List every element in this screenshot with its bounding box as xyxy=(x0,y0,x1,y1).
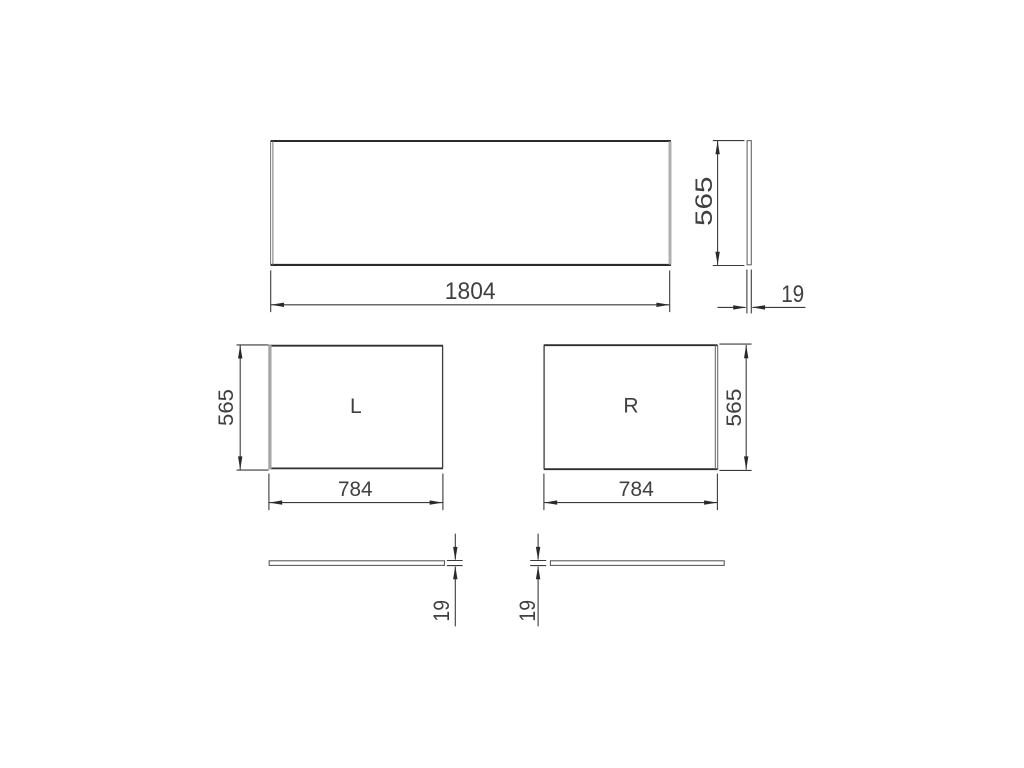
svg-text:784: 784 xyxy=(619,478,655,501)
svg-text:565: 565 xyxy=(691,177,718,227)
svg-text:565: 565 xyxy=(215,389,238,426)
svg-text:565: 565 xyxy=(723,389,746,427)
svg-text:L: L xyxy=(350,395,362,418)
svg-text:19: 19 xyxy=(781,281,804,308)
svg-text:1804: 1804 xyxy=(445,278,496,305)
svg-text:19: 19 xyxy=(515,600,540,622)
svg-text:784: 784 xyxy=(338,478,373,501)
svg-text:19: 19 xyxy=(429,600,454,622)
svg-text:R: R xyxy=(623,395,638,418)
